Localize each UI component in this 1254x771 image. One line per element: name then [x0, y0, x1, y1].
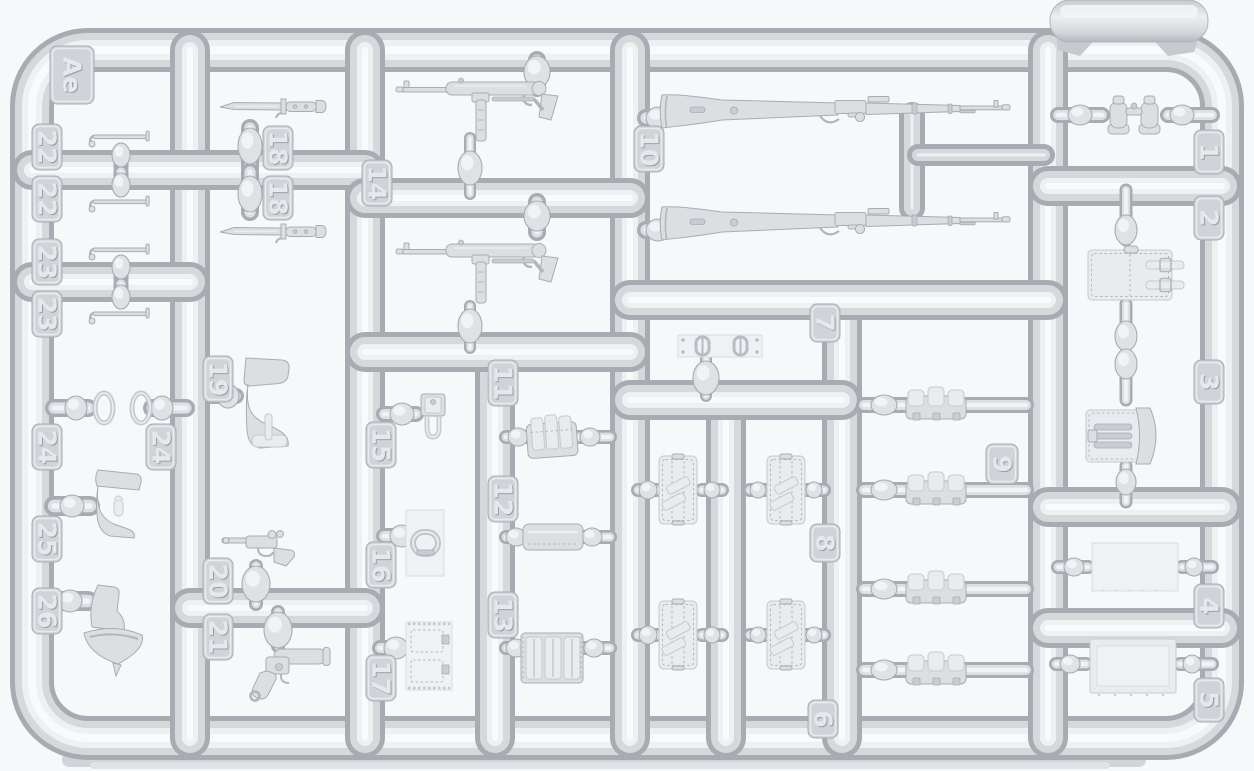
tab-label: 2	[1195, 209, 1224, 226]
tab-label: 25	[33, 522, 62, 557]
gate-highlight	[649, 110, 661, 120]
tab-label: 13	[489, 598, 518, 633]
tab-label: 22	[33, 130, 62, 165]
gate-highlight	[642, 628, 651, 636]
gate-highlight	[115, 288, 124, 299]
part-number-tab: 33	[1194, 360, 1225, 404]
sprue-scene: AeAe222222222323232324242424252526261818…	[0, 0, 1254, 771]
part-17-flat-pouch	[406, 622, 452, 690]
part-9-ammo-pouch-4	[906, 652, 966, 685]
part-16-buckle	[406, 510, 444, 576]
part-number-tab: 1818	[263, 176, 294, 220]
sprue-code-tab: AeAe	[50, 46, 94, 104]
part-number-tab: 66	[808, 700, 839, 738]
part-number-tab: 2323	[32, 239, 63, 285]
tab-label: 8	[811, 534, 840, 551]
gate-highlight	[154, 399, 165, 410]
gate-highlight	[808, 484, 816, 491]
gate-highlight	[808, 629, 816, 636]
tab-label: 4	[1195, 597, 1224, 614]
gate-highlight	[1188, 560, 1197, 568]
part-number-tab: 2121	[203, 614, 234, 660]
gate-highlight	[115, 258, 124, 269]
part-number-tab: 1414	[362, 160, 393, 206]
part-number-tab: 1212	[488, 476, 519, 522]
gate-highlight	[649, 222, 661, 232]
tab-label: 26	[33, 594, 62, 629]
part-number-tab: 1515	[366, 422, 397, 468]
gate-highlight	[387, 640, 399, 650]
gate-highlight	[393, 528, 405, 538]
gate-highlight	[246, 571, 260, 587]
part-number-tab: 44	[1194, 584, 1225, 628]
tab-label: 19	[204, 362, 233, 397]
part-number-tab: 55	[1194, 678, 1225, 722]
part-number-tab: 2626	[32, 588, 63, 634]
part-number-tab: 1616	[366, 542, 397, 588]
gate-highlight	[241, 133, 253, 149]
tab-label: 3	[1195, 373, 1224, 390]
gate-highlight	[752, 484, 760, 491]
part-number-tab: 2323	[32, 291, 63, 337]
tab-label: 15	[367, 428, 396, 463]
gate-highlight	[115, 146, 124, 157]
part-number-tab: 2424	[32, 424, 63, 470]
part-number-tab: 2020	[203, 558, 234, 604]
part-2-flap	[1088, 246, 1184, 300]
gate-highlight	[875, 398, 888, 407]
gate-highlight	[706, 629, 714, 636]
part-number-tab: 99	[986, 444, 1018, 484]
part-number-tab: 11	[1194, 130, 1225, 174]
tab-label: 6	[809, 710, 838, 727]
part-8-flat-bag-a	[659, 454, 697, 525]
tab-label: 9	[988, 455, 1017, 472]
tab-label: 14	[363, 166, 392, 201]
part-number-tab: 2222	[32, 124, 63, 170]
gate-highlight	[509, 641, 519, 649]
part-number-tab: 77	[810, 304, 841, 342]
tab-label: 24	[147, 430, 176, 465]
gate-highlight	[528, 205, 541, 219]
part-6-flat-bag-a	[659, 599, 697, 670]
gate-highlight	[875, 483, 888, 492]
gate-highlight	[583, 430, 593, 438]
part-12-pouch-body	[523, 524, 583, 550]
gate-highlight	[1071, 108, 1083, 117]
gate-highlight	[697, 365, 710, 380]
gate-highlight	[268, 617, 282, 633]
gate-highlight	[642, 483, 651, 491]
gate-highlight	[1173, 108, 1185, 117]
gate-highlight	[1119, 472, 1129, 484]
gate-highlight	[393, 406, 405, 416]
part-8-flat-bag-b	[767, 454, 805, 525]
gate-highlight	[528, 60, 541, 74]
gate-highlight	[509, 530, 519, 538]
part-9-ammo-pouch-2	[906, 472, 966, 505]
tab-label: 22	[33, 182, 62, 217]
gate-highlight	[1118, 219, 1129, 233]
part-9-ammo-pouch-3	[906, 571, 966, 604]
gate-highlight	[1186, 657, 1195, 665]
tab-label: 5	[1195, 691, 1224, 708]
part-number-tab: 2222	[32, 176, 63, 222]
tab-label: 10	[635, 132, 664, 167]
part-number-tab: 2424	[146, 424, 177, 470]
tab-label: 23	[33, 297, 62, 332]
gate-highlight	[587, 641, 597, 649]
gate-highlight	[241, 181, 253, 197]
gate-highlight	[511, 430, 521, 438]
part-number-tab: 1313	[488, 592, 519, 638]
tab-label: 18	[264, 181, 293, 216]
gate-highlight	[752, 629, 760, 636]
gate-highlight	[875, 582, 888, 591]
gate-highlight	[875, 663, 888, 672]
tab-label: 1	[1195, 143, 1224, 160]
part-4-panel	[1092, 543, 1178, 591]
gate-highlight	[63, 498, 75, 508]
tab-label: 16	[367, 548, 396, 583]
gate-highlight	[1067, 560, 1077, 568]
part-number-tab: 22	[1194, 196, 1225, 240]
tab-label: 12	[489, 482, 518, 517]
part-number-tab: 1111	[488, 360, 519, 406]
part-13-mag-pouch	[521, 633, 583, 683]
tab-label: 21	[204, 620, 233, 655]
tab-label: 11	[489, 366, 518, 401]
part-7-buckle-strip	[678, 335, 762, 357]
gate-highlight	[68, 399, 79, 410]
tab-label: 7	[811, 314, 840, 331]
part-number-tab: 2525	[32, 516, 63, 562]
tab-label: 20	[204, 564, 233, 599]
tab-label: 24	[33, 430, 62, 465]
tab-label: 18	[264, 131, 293, 166]
sprue-photo: AeAe222222222323232324242424252526261818…	[0, 0, 1254, 771]
gate-highlight	[461, 155, 473, 170]
part-number-tab: 1919	[203, 356, 234, 402]
part-number-tab: 1717	[366, 655, 397, 701]
tab-label: 17	[367, 661, 396, 696]
part-5-panel	[1090, 639, 1176, 695]
tab-label: Ae	[58, 57, 87, 93]
gate-highlight	[1118, 325, 1129, 339]
gate-highlight	[585, 530, 595, 538]
tab-label: 23	[33, 245, 62, 280]
part-number-tab: 88	[810, 524, 841, 562]
gate-highlight	[115, 176, 124, 187]
gate-highlight	[461, 313, 473, 328]
gate-highlight	[1118, 353, 1129, 367]
part-3-tool-pouch	[1086, 408, 1156, 464]
part-9-ammo-pouch-1	[906, 387, 966, 420]
part-number-tab: 1010	[634, 126, 665, 172]
part-number-tab: 1818	[263, 126, 294, 170]
gate-highlight	[706, 484, 714, 491]
part-11-mag-pouch	[525, 413, 578, 458]
part-6-flat-bag-b	[767, 599, 805, 670]
gate-highlight	[1063, 657, 1073, 665]
